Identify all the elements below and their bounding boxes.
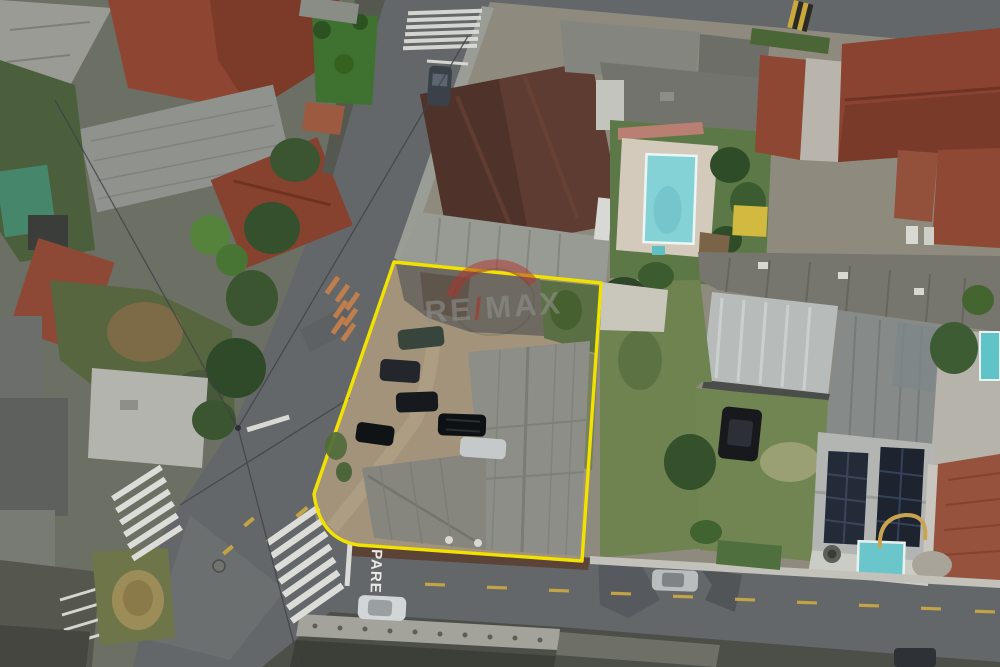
roof-vent: [914, 288, 924, 295]
manhole-cover: [213, 560, 225, 572]
aerial-photo-canvas: PARE: [0, 0, 1000, 667]
aerial-photo: PARE: [0, 0, 1000, 667]
dry-grass-center: [123, 580, 153, 616]
roof-vent: [660, 92, 674, 101]
red-tile-roof: [932, 148, 1000, 248]
tree-canopy: [930, 322, 978, 374]
concrete-slab-roof: [88, 368, 208, 468]
red-tile-roof: [894, 150, 938, 222]
white-bucket: [445, 536, 453, 544]
bush-over-line: [325, 432, 347, 460]
worn-grass: [760, 442, 820, 482]
garden-bush: [334, 54, 354, 74]
bare-dirt-patch: [107, 302, 183, 362]
white-window: [906, 226, 918, 244]
parked-suv: [438, 413, 487, 437]
garden-bush: [313, 21, 331, 39]
parked-car: [396, 391, 439, 412]
swimming-pool: [980, 332, 1000, 380]
parked-car: [379, 359, 420, 384]
car-roof: [727, 419, 754, 447]
tree-canopy: [638, 262, 674, 290]
roof-vent: [758, 262, 768, 269]
white-window: [924, 227, 934, 245]
tree-canopy: [226, 270, 278, 326]
tree-canopy: [270, 138, 320, 182]
car-windows: [662, 573, 684, 588]
white-bucket: [474, 539, 482, 547]
roof-vent: [838, 272, 848, 279]
pool-lounger: [652, 246, 665, 255]
gray-roof: [0, 398, 68, 516]
rooftop-unit: [120, 400, 138, 410]
solar-array: [824, 451, 869, 545]
bush: [690, 520, 722, 544]
car-windows: [368, 599, 393, 616]
spa-center: [828, 550, 837, 559]
concrete-strip: [600, 282, 668, 332]
parked-car: [894, 648, 936, 667]
tree-canopy: [710, 147, 750, 183]
banana-tree: [216, 244, 248, 276]
tree-canopy: [664, 434, 716, 490]
yellow-canopy: [732, 205, 768, 237]
terracotta-roof-edge: [302, 102, 345, 135]
tree-canopy: [206, 338, 266, 398]
tree-canopy: [962, 285, 994, 315]
tree-canopy: [192, 400, 236, 440]
tree-canopy: [244, 202, 300, 254]
rubble-pile: [912, 551, 952, 579]
gray-roof: [0, 316, 42, 404]
grass-shading: [618, 330, 662, 390]
red-tile-roof: [755, 55, 808, 160]
utility-pole: [235, 425, 241, 431]
bush-over-line: [336, 462, 352, 482]
parked-white-car: [459, 436, 506, 459]
pare-road-marking: PARE: [366, 549, 385, 594]
dark-roof: [0, 625, 90, 667]
